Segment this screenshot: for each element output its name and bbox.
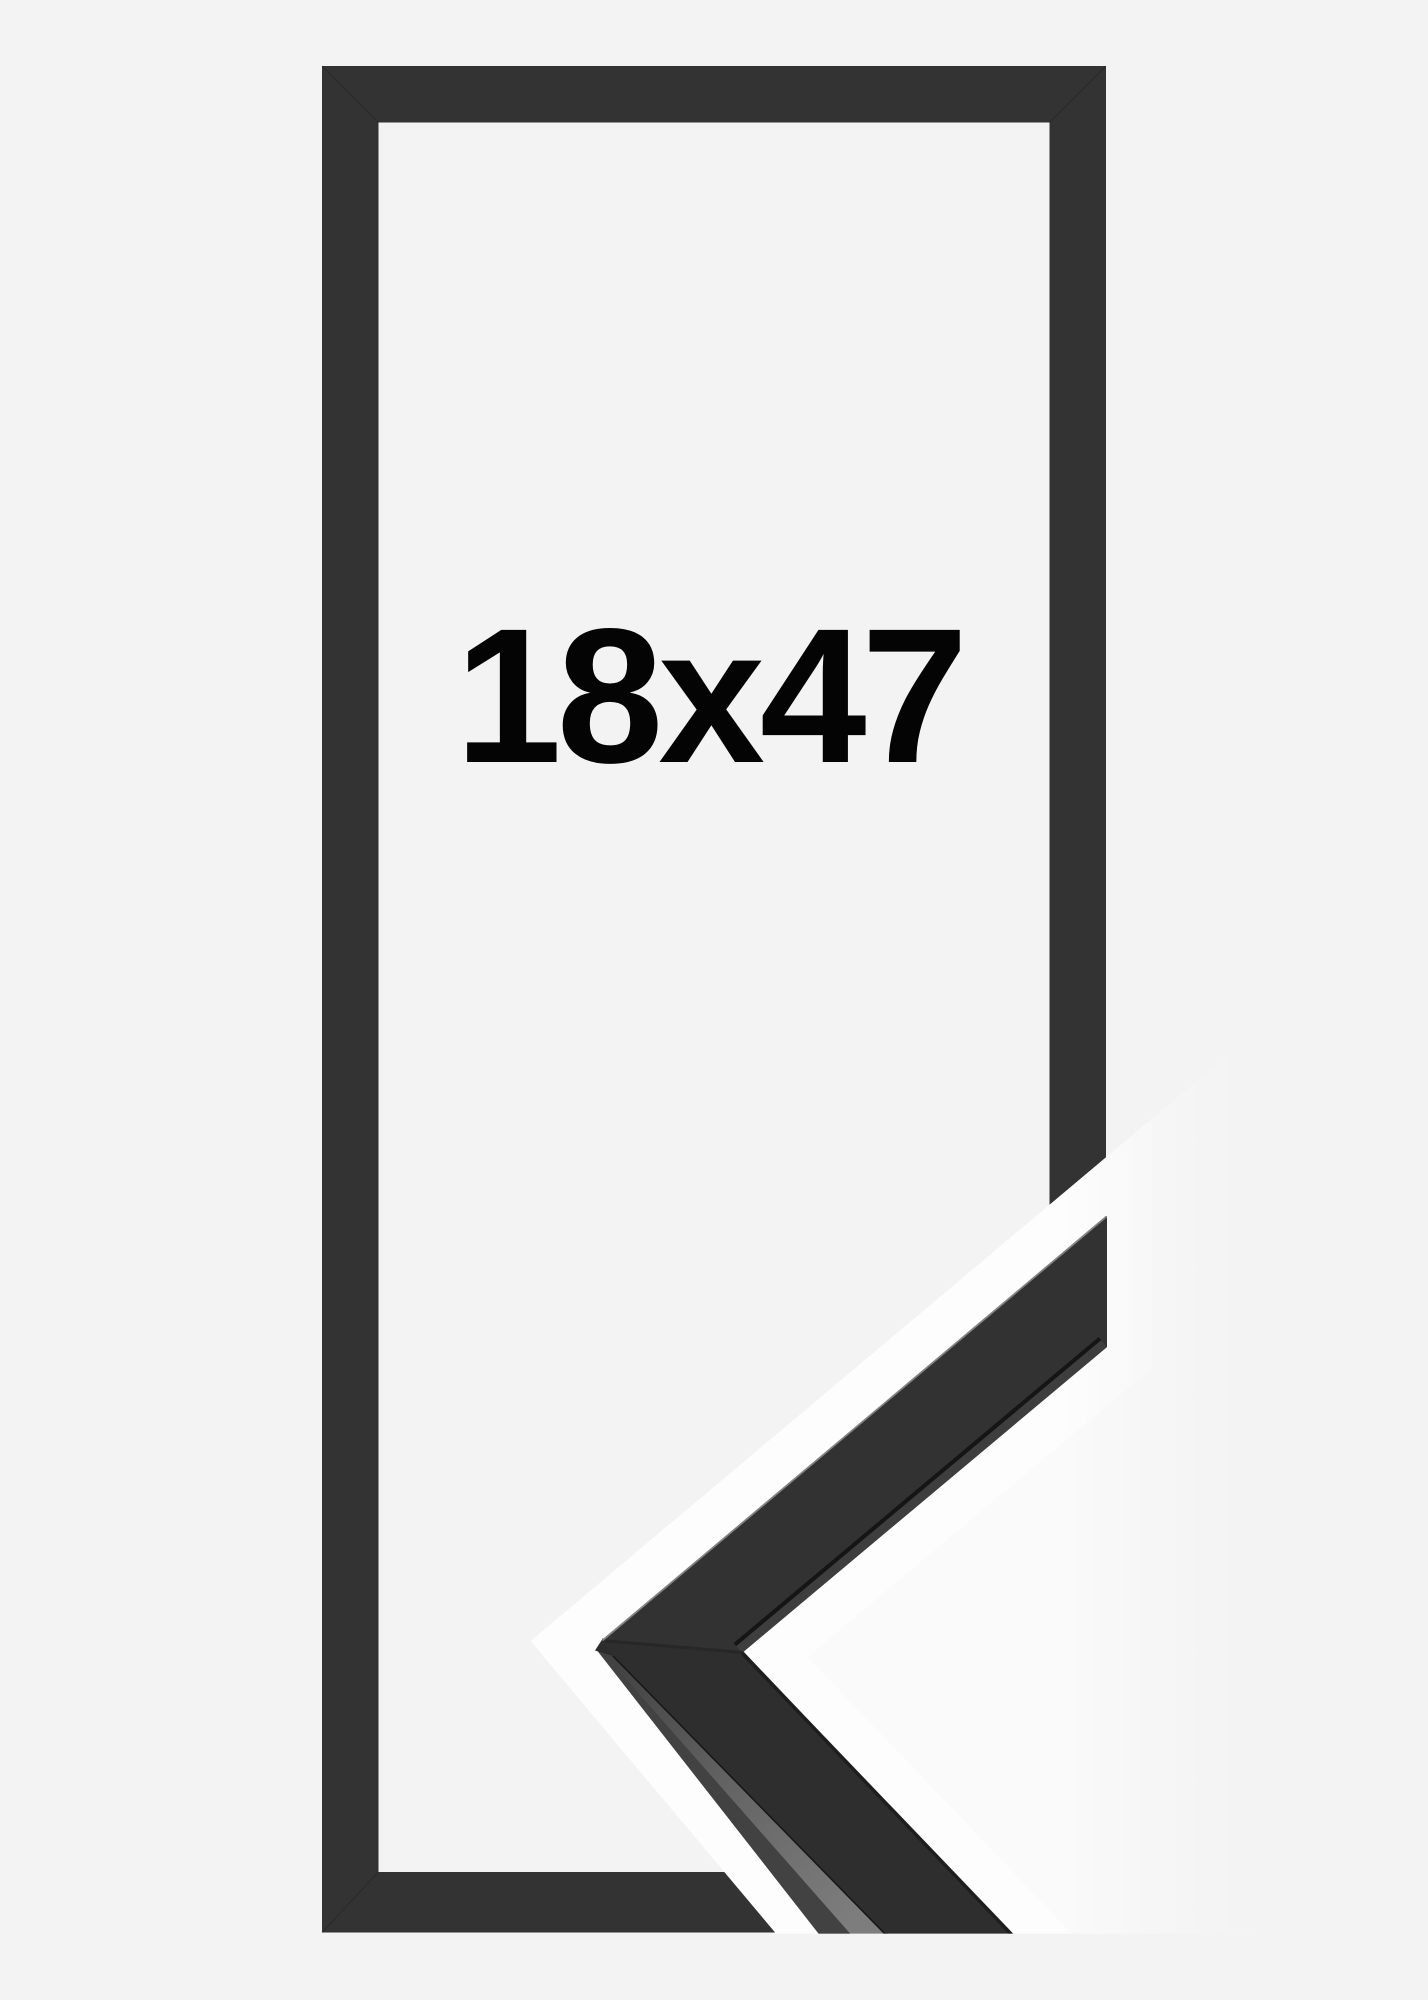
svg-text:18x47: 18x47 [455, 588, 963, 803]
